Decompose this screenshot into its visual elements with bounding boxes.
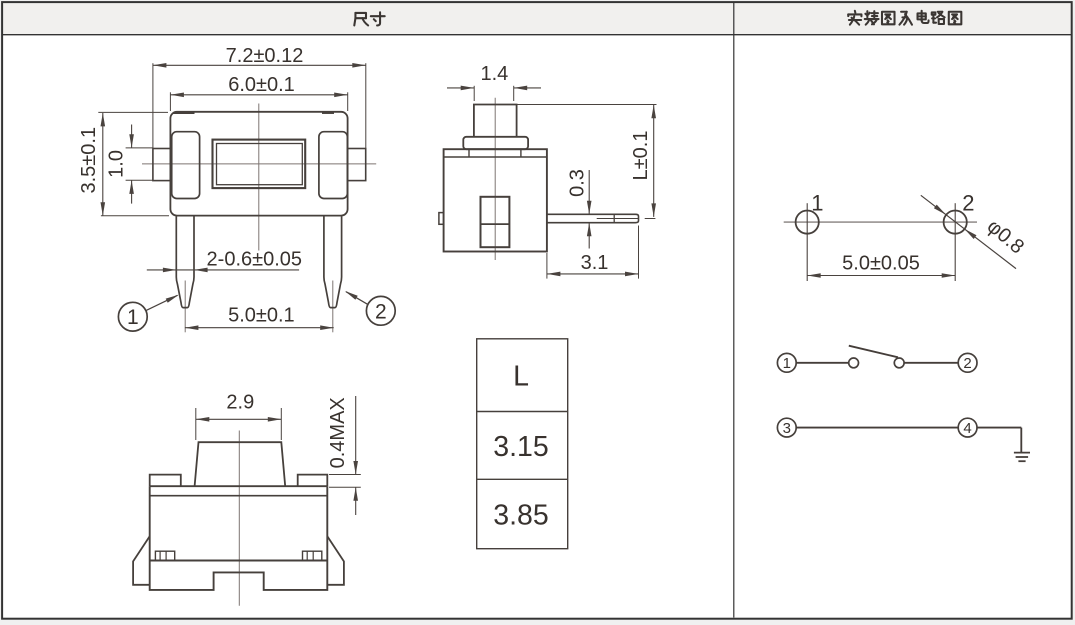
svg-text:4: 4	[963, 420, 971, 437]
svg-text:2: 2	[963, 355, 971, 372]
svg-text:2-0.6±0.05: 2-0.6±0.05	[207, 248, 303, 270]
svg-text:5.0±0.1: 5.0±0.1	[228, 304, 295, 326]
svg-text:1: 1	[127, 306, 139, 329]
svg-text:5.0±0.05: 5.0±0.05	[842, 253, 920, 275]
svg-text:6.0±0.1: 6.0±0.1	[228, 74, 295, 96]
svg-text:1: 1	[783, 355, 791, 372]
svg-text:3.15: 3.15	[493, 431, 548, 463]
svg-text:2: 2	[375, 300, 387, 323]
svg-text:3.85: 3.85	[493, 500, 548, 532]
svg-text:7.2±0.12: 7.2±0.12	[226, 45, 304, 67]
svg-text:3.1: 3.1	[581, 252, 609, 274]
svg-text:2: 2	[962, 190, 974, 215]
svg-text:L: L	[513, 361, 529, 393]
svg-text:1: 1	[811, 190, 823, 215]
svg-text:3: 3	[783, 420, 791, 437]
svg-text:1.4: 1.4	[480, 63, 508, 85]
svg-text:L±0.1: L±0.1	[630, 131, 652, 181]
svg-text:1.0: 1.0	[106, 150, 128, 178]
svg-text:3.5±0.1: 3.5±0.1	[78, 127, 100, 194]
svg-text:0.3: 0.3	[567, 169, 589, 197]
svg-text:0.4MAX: 0.4MAX	[327, 397, 349, 468]
svg-text:2.9: 2.9	[226, 391, 254, 413]
